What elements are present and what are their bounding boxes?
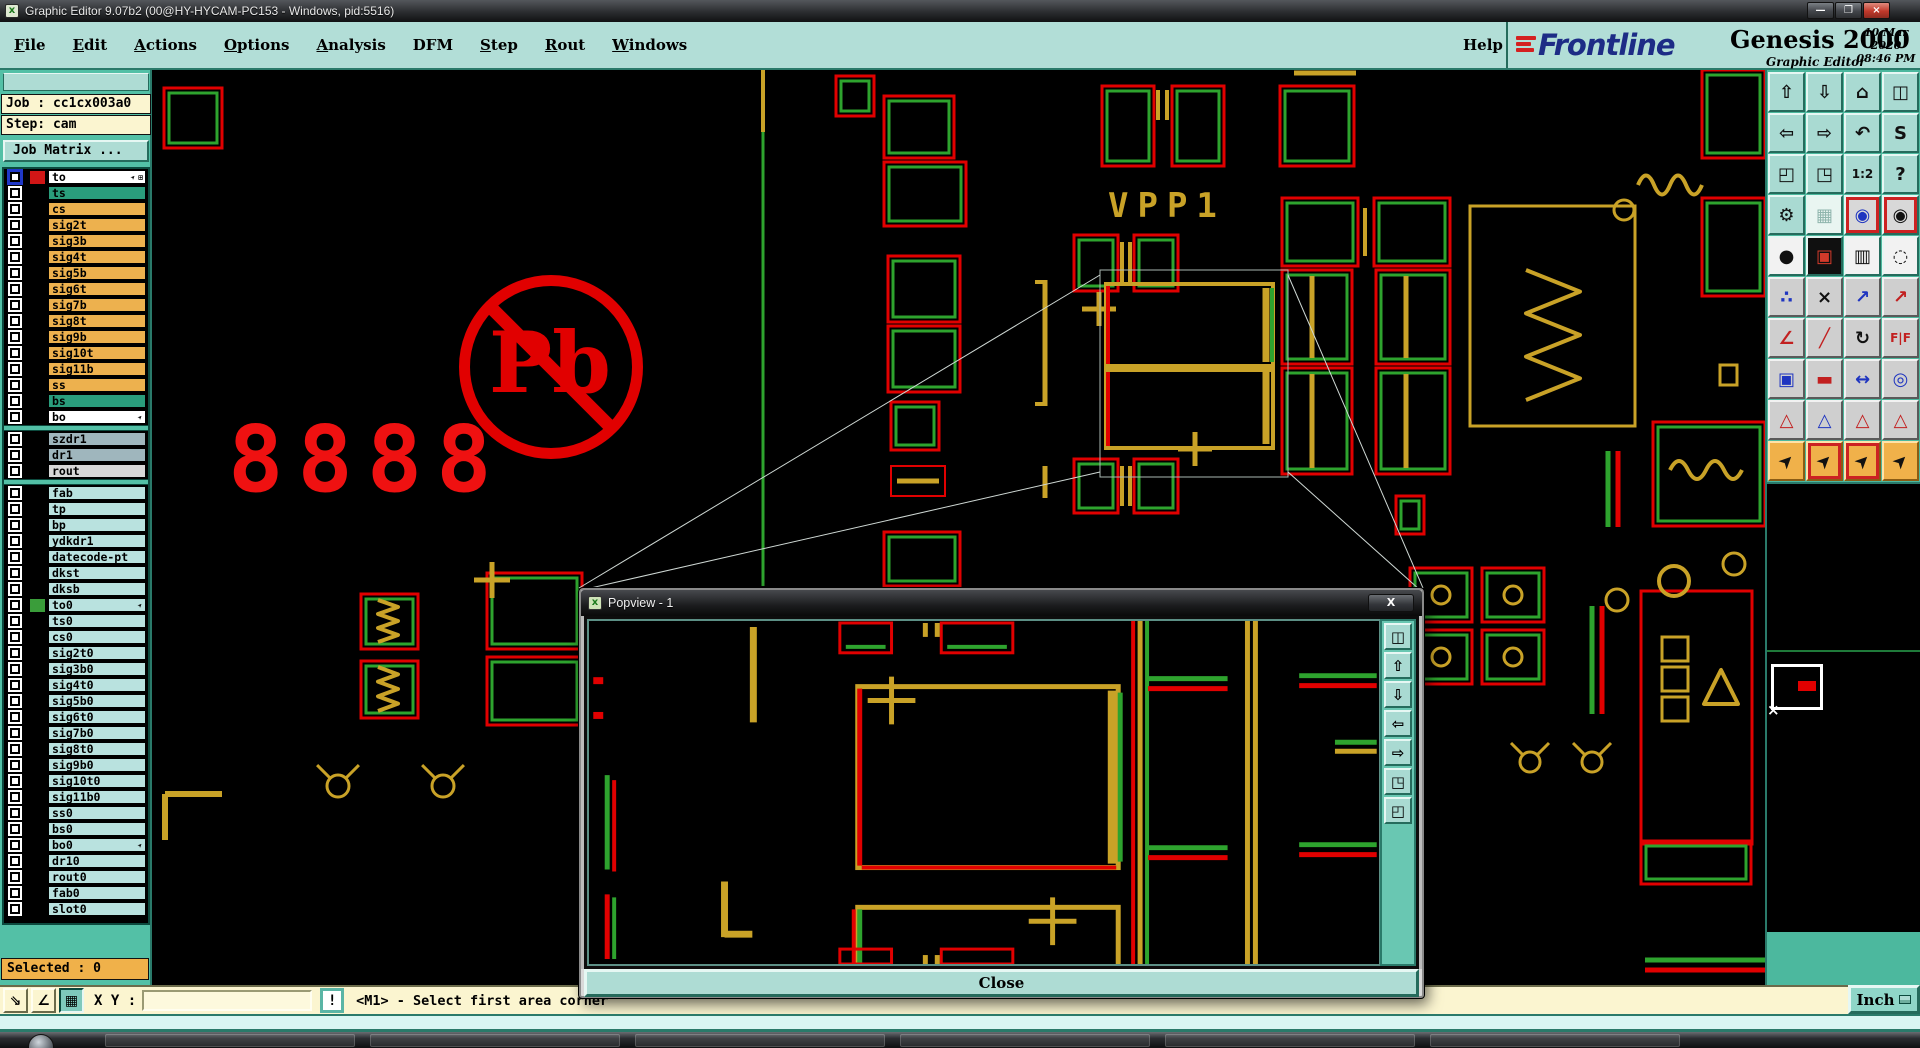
layer-label[interactable]: szdr1 bbox=[48, 432, 146, 446]
layer-label[interactable]: sig6t bbox=[48, 282, 146, 296]
layer-checkbox[interactable] bbox=[10, 172, 20, 182]
netlist-top-button[interactable]: ◉ bbox=[1844, 195, 1881, 235]
menubar: FileEditActionsOptionsAnalysisDFMStepRou… bbox=[0, 22, 1920, 70]
snap-diagonal-mode-button[interactable]: ⇘ bbox=[3, 988, 28, 1013]
center-view-icon: ◳ bbox=[1816, 164, 1833, 185]
select-reference-button[interactable]: ◌ bbox=[1882, 236, 1919, 276]
layer-label[interactable]: sig2t0 bbox=[48, 646, 146, 660]
right-tool-panel: ⇧⇩⌂◫⇦⇨↶S◰◳1:2?⚙▦◉◉●▣▥◌∴×↗↗∠╱↻F|F▣▬↔◎△△△△… bbox=[1765, 70, 1920, 985]
grid-toggle-button[interactable]: ▦ bbox=[59, 988, 84, 1013]
menu-edit[interactable]: Edit bbox=[73, 36, 108, 54]
silkscreen-vpp1-text: VPP1 bbox=[1108, 186, 1226, 226]
layer-label[interactable]: sig4t bbox=[48, 250, 146, 264]
layer-label[interactable]: bp bbox=[48, 518, 146, 532]
layer-row-sig8t0[interactable]: sig8t0 bbox=[4, 741, 148, 757]
expand-view-icon: ◰ bbox=[1778, 164, 1795, 185]
app-icon: x bbox=[5, 4, 19, 18]
layer-active-arrow-icon: ➤ bbox=[136, 600, 146, 610]
taskbar-button[interactable] bbox=[900, 1034, 1150, 1047]
layer-label[interactable]: cs bbox=[48, 202, 146, 216]
layer-label[interactable]: ts0 bbox=[48, 614, 146, 628]
netlist-bottom-button[interactable]: ◉ bbox=[1882, 195, 1919, 235]
layer-row-bo[interactable]: bo➤ bbox=[4, 409, 148, 425]
layer-label[interactable]: rout0 bbox=[48, 870, 146, 884]
popview-pan-left-button[interactable]: ⇦ bbox=[1384, 710, 1412, 737]
layer-display-button[interactable]: ▣ bbox=[1806, 236, 1843, 276]
layer-checkbox[interactable] bbox=[10, 904, 20, 914]
popview-artwork bbox=[589, 621, 1379, 964]
copy-to-layer-button[interactable]: ▣ bbox=[1768, 359, 1805, 399]
layer-label[interactable]: ss bbox=[48, 378, 146, 392]
copy-feature-button[interactable]: ↗ bbox=[1882, 277, 1919, 317]
layer-label[interactable]: sig10t0 bbox=[48, 774, 146, 788]
layer-checkbox[interactable] bbox=[10, 412, 20, 422]
popview-duplicate-view-button[interactable]: ◫ bbox=[1384, 623, 1412, 650]
mouse-cursor-icon: × bbox=[1767, 701, 1780, 719]
layer-color-swatch[interactable] bbox=[30, 599, 45, 612]
layer-row-sig10t[interactable]: sig10t bbox=[4, 345, 148, 361]
layer-checkbox[interactable] bbox=[10, 434, 20, 444]
center-view-button[interactable]: ◳ bbox=[1806, 154, 1843, 194]
layer-label[interactable]: dkst bbox=[48, 566, 146, 580]
layer-checkbox[interactable] bbox=[10, 284, 20, 294]
arc-mode-2-icon: △ bbox=[1818, 410, 1832, 431]
layer-checkbox[interactable] bbox=[10, 648, 20, 658]
layer-row-sig9b0[interactable]: sig9b0 bbox=[4, 757, 148, 773]
layer-label[interactable]: to0➤ bbox=[48, 598, 146, 612]
sevenseg-8888-text: 8888 bbox=[228, 406, 506, 513]
layer-label[interactable]: sig6t0 bbox=[48, 710, 146, 724]
expand-view-button[interactable]: ◰ bbox=[1768, 154, 1805, 194]
windows-taskbar[interactable] bbox=[0, 1032, 1920, 1048]
zoom-1-2-button[interactable]: 1:2 bbox=[1844, 154, 1881, 194]
surface-circles-icon: ◎ bbox=[1893, 369, 1909, 390]
layer-row-datecode-pt[interactable]: datecode-pt bbox=[4, 549, 148, 565]
netlist-top-icon: ◉ bbox=[1855, 205, 1871, 226]
measure-ruler-button[interactable]: ▥ bbox=[1844, 236, 1881, 276]
layer-row-sig2t[interactable]: sig2t bbox=[4, 217, 148, 233]
layer-checkbox[interactable] bbox=[10, 632, 20, 642]
layer-checkbox[interactable] bbox=[10, 584, 20, 594]
taskbar-button[interactable] bbox=[370, 1034, 620, 1047]
layer-checkbox[interactable] bbox=[10, 450, 20, 460]
job-label: Job : cc1cx003a0 bbox=[1, 94, 151, 114]
layer-row-dkst[interactable]: dkst bbox=[4, 565, 148, 581]
layer-row-rout0[interactable]: rout0 bbox=[4, 869, 148, 885]
select-single-icon: ➤ bbox=[1774, 448, 1800, 474]
layer-checkbox[interactable] bbox=[10, 600, 20, 610]
arc-mode-3-icon: △ bbox=[1856, 410, 1870, 431]
layer-row-szdr1[interactable]: szdr1 bbox=[4, 431, 148, 447]
layer-checkbox[interactable] bbox=[10, 520, 20, 530]
layer-row-ts0[interactable]: ts0 bbox=[4, 613, 148, 629]
units-toggle-button[interactable]: Inch bbox=[1848, 985, 1920, 1014]
layer-row-rout[interactable]: rout bbox=[4, 463, 148, 479]
layer-color-swatch[interactable] bbox=[30, 171, 45, 184]
measure-distance-button[interactable]: ↔ bbox=[1844, 359, 1881, 399]
layer-row-dr10[interactable]: dr10 bbox=[4, 853, 148, 869]
minimize-button[interactable]: — bbox=[1807, 2, 1834, 19]
layer-label[interactable]: bo➤ bbox=[48, 410, 146, 424]
layer-label[interactable]: slot0 bbox=[48, 902, 146, 916]
layer-checkbox[interactable] bbox=[10, 744, 20, 754]
status-message: <M1> - Select first area corner bbox=[356, 993, 608, 1009]
popview-titlebar[interactable]: x Popview - 1 X bbox=[581, 590, 1422, 616]
pan-left-icon: ⇦ bbox=[1779, 123, 1794, 144]
arc-mode-4-button[interactable]: △ bbox=[1882, 400, 1919, 440]
layer-checkbox[interactable] bbox=[10, 856, 20, 866]
coord-window-button[interactable]: ◫ bbox=[1882, 72, 1919, 112]
product-subtitle: Graphic Editor bbox=[1766, 55, 1865, 69]
units-shade-icon bbox=[1899, 995, 1911, 1004]
units-label: Inch bbox=[1857, 991, 1895, 1009]
copy-to-layer-icon: ▣ bbox=[1778, 369, 1795, 390]
layer-label[interactable]: sig10t bbox=[48, 346, 146, 360]
coord-window-icon: ◫ bbox=[1892, 82, 1909, 103]
layer-checkbox[interactable] bbox=[10, 220, 20, 230]
layer-active-arrow-icon: ➤ bbox=[129, 172, 139, 182]
layer-label[interactable]: dr1 bbox=[48, 448, 146, 462]
serpentine-scan-button[interactable]: S bbox=[1882, 113, 1919, 153]
layer-row-sig3b0[interactable]: sig3b0 bbox=[4, 661, 148, 677]
angle-line-icon: ∠ bbox=[1778, 328, 1794, 349]
angle-line-button[interactable]: ∠ bbox=[1768, 318, 1805, 358]
layer-row-sig7b0[interactable]: sig7b0 bbox=[4, 725, 148, 741]
layer-checkbox[interactable] bbox=[10, 568, 20, 578]
menu-file[interactable]: File bbox=[14, 36, 46, 54]
layer-row-sig6t0[interactable]: sig6t0 bbox=[4, 709, 148, 725]
layer-label[interactable]: sig5b0 bbox=[48, 694, 146, 708]
layer-checkbox[interactable] bbox=[10, 252, 20, 262]
select-net-button[interactable]: ➤ bbox=[1882, 441, 1919, 481]
datetime: 10 Mar 2020 08:46 PM bbox=[1853, 26, 1919, 65]
layer-label[interactable]: ts bbox=[48, 186, 146, 200]
time: 08:46 PM bbox=[1857, 52, 1916, 65]
layer-label[interactable]: bs bbox=[48, 394, 146, 408]
layer-checkbox[interactable] bbox=[10, 316, 20, 326]
layer-row-dr1[interactable]: dr1 bbox=[4, 447, 148, 463]
move-feature-button[interactable]: ↗ bbox=[1844, 277, 1881, 317]
layer-row-dksb[interactable]: dksb bbox=[4, 581, 148, 597]
select-rect-button[interactable]: ➤ bbox=[1806, 441, 1843, 481]
net-endpoints-icon: ∴ bbox=[1780, 287, 1793, 308]
layer-label[interactable]: sig8t bbox=[48, 314, 146, 328]
layer-label[interactable]: sig9b bbox=[48, 330, 146, 344]
layer-row-to0[interactable]: to0➤ bbox=[4, 597, 148, 613]
layer-row-ydkdr1[interactable]: ydkdr1 bbox=[4, 533, 148, 549]
layer-active-arrow-icon: ➤ bbox=[136, 412, 146, 422]
layer-label[interactable]: sig2t bbox=[48, 218, 146, 232]
layer-label[interactable]: sig11b0 bbox=[48, 790, 146, 804]
layer-row-bp[interactable]: bp bbox=[4, 517, 148, 533]
layer-checkbox[interactable] bbox=[10, 840, 20, 850]
layer-row-sig11b[interactable]: sig11b bbox=[4, 361, 148, 377]
overview-panel: × X = 3.920177" Y = 2.601903" bbox=[1767, 482, 1920, 932]
menu-dfm[interactable]: DFM bbox=[413, 36, 453, 54]
window-title: Graphic Editor 9.07b2 (00@HY-HYCAM-PC153… bbox=[25, 4, 394, 18]
layer-row-bo0[interactable]: bo0➤ bbox=[4, 837, 148, 853]
select-polygon-button[interactable]: ➤ bbox=[1844, 441, 1881, 481]
layer-row-sig4t0[interactable]: sig4t0 bbox=[4, 677, 148, 693]
grid-snap-icon: ▦ bbox=[1816, 205, 1833, 226]
layer-row-to[interactable]: to➤⊞ bbox=[4, 169, 148, 185]
popview-close-button[interactable]: Close bbox=[584, 969, 1419, 997]
layer-label[interactable]: fab bbox=[48, 486, 146, 500]
layer-checkbox[interactable] bbox=[10, 728, 20, 738]
layer-row-sig5b0[interactable]: sig5b0 bbox=[4, 693, 148, 709]
layer-checkbox[interactable] bbox=[10, 616, 20, 626]
layer-label[interactable]: sig5b bbox=[48, 266, 146, 280]
overview-board-rect bbox=[1798, 681, 1816, 691]
feature-info-button[interactable]: ● bbox=[1768, 236, 1805, 276]
layer-row-tp[interactable]: tp bbox=[4, 501, 148, 517]
layer-checkbox[interactable] bbox=[10, 268, 20, 278]
layer-row-sig9b[interactable]: sig9b bbox=[4, 329, 148, 345]
alert-button[interactable]: ! bbox=[320, 988, 344, 1013]
layer-checkbox[interactable] bbox=[10, 696, 20, 706]
layer-checkbox[interactable] bbox=[10, 348, 20, 358]
move-feature-icon: ↗ bbox=[1855, 287, 1870, 308]
layer-label[interactable]: sig3b0 bbox=[48, 662, 146, 676]
measure-distance-icon: ↔ bbox=[1855, 369, 1870, 390]
sidebar-header-field[interactable] bbox=[3, 73, 149, 91]
rotate-feature-icon: ↻ bbox=[1855, 328, 1870, 349]
layer-checkbox[interactable] bbox=[10, 488, 20, 498]
arc-mode-4-icon: △ bbox=[1894, 410, 1908, 431]
query-mode-button[interactable]: ? bbox=[1882, 154, 1919, 194]
measure-ruler-icon: ▥ bbox=[1854, 246, 1871, 267]
zoom-out-view-icon: ⇩ bbox=[1817, 82, 1832, 103]
window-titlebar[interactable]: x Graphic Editor 9.07b2 (00@HY-HYCAM-PC1… bbox=[0, 0, 1920, 22]
stretch-line-icon: ▬ bbox=[1816, 369, 1833, 390]
select-polygon-icon: ➤ bbox=[1850, 448, 1876, 474]
popview-zoom-in-view-button[interactable]: ⇧ bbox=[1384, 652, 1412, 679]
layer-label[interactable]: sig3b bbox=[48, 234, 146, 248]
layer-checkbox[interactable] bbox=[10, 204, 20, 214]
pan-left-button[interactable]: ⇦ bbox=[1768, 113, 1805, 153]
layer-checkbox[interactable] bbox=[10, 466, 20, 476]
previous-view-icon: ↶ bbox=[1855, 123, 1870, 144]
zoom-in-view-icon: ⇧ bbox=[1779, 82, 1794, 103]
layer-label[interactable]: fab0 bbox=[48, 886, 146, 900]
layer-label[interactable]: sig11b bbox=[48, 362, 146, 376]
layer-label[interactable]: sig9b0 bbox=[48, 758, 146, 772]
layer-active-arrow-icon: ➤ bbox=[136, 840, 146, 850]
layer-checkbox[interactable] bbox=[10, 824, 20, 834]
layer-checkbox[interactable] bbox=[10, 712, 20, 722]
layer-row-fab0[interactable]: fab0 bbox=[4, 885, 148, 901]
arc-mode-1-button[interactable]: △ bbox=[1768, 400, 1805, 440]
xy-input[interactable] bbox=[142, 990, 312, 1011]
layer-checkbox[interactable] bbox=[10, 776, 20, 786]
zoom-1-2-icon: 1:2 bbox=[1852, 167, 1874, 181]
angle-mode-button[interactable]: ∠ bbox=[31, 988, 56, 1013]
menu-windows[interactable]: Windows bbox=[612, 36, 687, 54]
popview-body: ◫⇧⇩⇦⇨◳◰ bbox=[581, 616, 1422, 969]
layer-sidebar: Job : cc1cx003a0 Step: cam Job Matrix ..… bbox=[0, 70, 152, 985]
layer-label[interactable]: rout bbox=[48, 464, 146, 478]
layer-row-sig2t0[interactable]: sig2t0 bbox=[4, 645, 148, 661]
layer-row-ts[interactable]: ts bbox=[4, 185, 148, 201]
graphic-editor-app: x Graphic Editor 9.07b2 (00@HY-HYCAM-PC1… bbox=[0, 0, 1920, 1048]
layer-label[interactable]: dr10 bbox=[48, 854, 146, 868]
layer-row-ss0[interactable]: ss0 bbox=[4, 805, 148, 821]
date: 10 Mar 2020 bbox=[1864, 26, 1908, 52]
pan-right-icon: ⇨ bbox=[1817, 123, 1832, 144]
layer-row-fab[interactable]: fab bbox=[4, 485, 148, 501]
arc-mode-1-icon: △ bbox=[1780, 410, 1794, 431]
layer-row-cs0[interactable]: cs0 bbox=[4, 629, 148, 645]
layer-row-sig4t[interactable]: sig4t bbox=[4, 249, 148, 265]
layer-display-icon: ▣ bbox=[1816, 246, 1833, 267]
overview-viewport-box[interactable]: × bbox=[1771, 664, 1823, 710]
layer-checkbox[interactable] bbox=[10, 664, 20, 674]
selected-count: Selected : 0 bbox=[1, 958, 149, 980]
menu-help[interactable]: Help bbox=[1463, 36, 1503, 54]
layer-row-bs0[interactable]: bs0 bbox=[4, 821, 148, 837]
rotate-feature-button[interactable]: ↻ bbox=[1844, 318, 1881, 358]
netlist-bottom-icon: ◉ bbox=[1893, 205, 1909, 226]
menu-analysis[interactable]: Analysis bbox=[317, 36, 386, 54]
layer-checkbox[interactable] bbox=[10, 680, 20, 690]
layer-label[interactable]: sig7b0 bbox=[48, 726, 146, 740]
popview-title: Popview - 1 bbox=[608, 596, 673, 610]
layer-label[interactable]: to➤⊞ bbox=[48, 170, 146, 184]
layer-label[interactable]: cs0 bbox=[48, 630, 146, 644]
taskbar-button[interactable] bbox=[635, 1034, 885, 1047]
delete-feature-button[interactable]: × bbox=[1806, 277, 1843, 317]
zoom-out-view-button[interactable]: ⇩ bbox=[1806, 72, 1843, 112]
layer-label[interactable]: ydkdr1 bbox=[48, 534, 146, 548]
layer-label[interactable]: dksb bbox=[48, 582, 146, 596]
pan-right-button[interactable]: ⇨ bbox=[1806, 113, 1843, 153]
close-button[interactable]: × bbox=[1863, 2, 1890, 19]
taskbar-button[interactable] bbox=[1430, 1034, 1680, 1047]
frontline-stripes-icon bbox=[1516, 34, 1536, 56]
previous-view-button[interactable]: ↶ bbox=[1844, 113, 1881, 153]
step-label: Step: cam bbox=[1, 115, 151, 135]
popview-zoom-out-view-button[interactable]: ⇩ bbox=[1384, 681, 1412, 708]
layer-checkbox[interactable] bbox=[10, 300, 20, 310]
layer-row-sig11b0[interactable]: sig11b0 bbox=[4, 789, 148, 805]
layer-checkbox[interactable] bbox=[10, 536, 20, 546]
layer-label[interactable]: bs0 bbox=[48, 822, 146, 836]
taskbar-button[interactable] bbox=[105, 1034, 355, 1047]
layer-checkbox[interactable] bbox=[10, 188, 20, 198]
home-view-button[interactable]: ⌂ bbox=[1844, 72, 1881, 112]
layer-row-sig10t0[interactable]: sig10t0 bbox=[4, 773, 148, 789]
mirror-feature-icon: F|F bbox=[1890, 331, 1911, 345]
layer-checkbox[interactable] bbox=[10, 552, 20, 562]
menu-rout[interactable]: Rout bbox=[545, 36, 585, 54]
layer-grid-icon: ⊞ bbox=[138, 173, 143, 182]
layer-row-sig8t[interactable]: sig8t bbox=[4, 313, 148, 329]
line-45-button[interactable]: ╱ bbox=[1806, 318, 1843, 358]
layer-checkbox[interactable] bbox=[10, 364, 20, 374]
layer-label[interactable]: bo0➤ bbox=[48, 838, 146, 852]
layer-label[interactable]: sig7b bbox=[48, 298, 146, 312]
popview-window: x Popview - 1 X ◫⇧⇩⇦⇨◳◰ Close bbox=[579, 588, 1424, 998]
xy-label: X Y : bbox=[94, 993, 136, 1009]
layer-checkbox[interactable] bbox=[10, 504, 20, 514]
popview-canvas[interactable] bbox=[587, 619, 1381, 966]
stretch-line-button[interactable]: ▬ bbox=[1806, 359, 1843, 399]
select-rect-icon: ➤ bbox=[1812, 448, 1838, 474]
net-endpoints-button[interactable]: ∴ bbox=[1768, 277, 1805, 317]
layer-row-slot0[interactable]: slot0 bbox=[4, 901, 148, 917]
layer-label[interactable]: sig4t0 bbox=[48, 678, 146, 692]
layer-checkbox[interactable] bbox=[10, 236, 20, 246]
home-view-icon: ⌂ bbox=[1856, 82, 1869, 103]
zoom-in-view-button[interactable]: ⇧ bbox=[1768, 72, 1805, 112]
select-net-icon: ➤ bbox=[1888, 448, 1914, 474]
layer-checkbox[interactable] bbox=[10, 760, 20, 770]
layer-label[interactable]: sig8t0 bbox=[48, 742, 146, 756]
arc-mode-3-button[interactable]: △ bbox=[1844, 400, 1881, 440]
menu-actions[interactable]: Actions bbox=[134, 36, 197, 54]
feature-info-icon: ● bbox=[1779, 246, 1795, 267]
select-single-button[interactable]: ➤ bbox=[1768, 441, 1805, 481]
layer-checkbox[interactable] bbox=[10, 872, 20, 882]
select-reference-icon: ◌ bbox=[1893, 246, 1909, 267]
layer-label[interactable]: datecode-pt bbox=[48, 550, 146, 564]
menu-step[interactable]: Step bbox=[480, 36, 518, 54]
tools-palette-icon: ⚙ bbox=[1778, 205, 1794, 226]
popview-center-view-button[interactable]: ◳ bbox=[1384, 768, 1412, 795]
frontline-logo: Frontline bbox=[1538, 28, 1675, 62]
layer-label[interactable]: ss0 bbox=[48, 806, 146, 820]
popview-pan-right-button[interactable]: ⇨ bbox=[1384, 739, 1412, 766]
delete-feature-icon: × bbox=[1817, 287, 1832, 308]
layer-row-bs[interactable]: bs bbox=[4, 393, 148, 409]
tools-palette-button[interactable]: ⚙ bbox=[1768, 195, 1805, 235]
popview-expand-view-button[interactable]: ◰ bbox=[1384, 797, 1412, 824]
layer-label[interactable]: tp bbox=[48, 502, 146, 516]
layer-checkbox[interactable] bbox=[10, 792, 20, 802]
bottom-strip bbox=[0, 1014, 1920, 1032]
layer-row-sig6t[interactable]: sig6t bbox=[4, 281, 148, 297]
layer-checkbox[interactable] bbox=[10, 808, 20, 818]
popview-close-icon[interactable]: X bbox=[1368, 594, 1414, 612]
line-45-icon: ╱ bbox=[1819, 328, 1830, 349]
layer-list: to➤⊞tscssig2tsig3bsig4tsig5bsig6tsig7bsi… bbox=[2, 167, 150, 925]
menu-options[interactable]: Options bbox=[224, 36, 290, 54]
grid-snap-button[interactable]: ▦ bbox=[1806, 195, 1843, 235]
maximize-button[interactable]: ❐ bbox=[1835, 2, 1862, 19]
layer-row-sig7b[interactable]: sig7b bbox=[4, 297, 148, 313]
layer-row-sig5b[interactable]: sig5b bbox=[4, 265, 148, 281]
serpentine-scan-icon: S bbox=[1894, 123, 1907, 144]
start-orb-icon[interactable] bbox=[28, 1034, 54, 1048]
mirror-feature-button[interactable]: F|F bbox=[1882, 318, 1919, 358]
overview-divider bbox=[1767, 650, 1920, 652]
copy-feature-icon: ↗ bbox=[1893, 287, 1908, 308]
brand-block: Frontline Genesis 2000 Graphic Editor 10… bbox=[1508, 22, 1920, 68]
layer-row-cs[interactable]: cs bbox=[4, 201, 148, 217]
popview-icon: x bbox=[588, 596, 602, 610]
layer-row-sig3b[interactable]: sig3b bbox=[4, 233, 148, 249]
arc-mode-2-button[interactable]: △ bbox=[1806, 400, 1843, 440]
job-matrix-button[interactable]: Job Matrix ... bbox=[3, 140, 149, 162]
taskbar-button[interactable] bbox=[1165, 1034, 1415, 1047]
surface-circles-button[interactable]: ◎ bbox=[1882, 359, 1919, 399]
layer-checkbox[interactable] bbox=[10, 380, 20, 390]
layer-checkbox[interactable] bbox=[10, 396, 20, 406]
layer-row-ss[interactable]: ss bbox=[4, 377, 148, 393]
layer-checkbox[interactable] bbox=[10, 888, 20, 898]
layer-checkbox[interactable] bbox=[10, 332, 20, 342]
query-mode-icon: ? bbox=[1895, 164, 1905, 185]
